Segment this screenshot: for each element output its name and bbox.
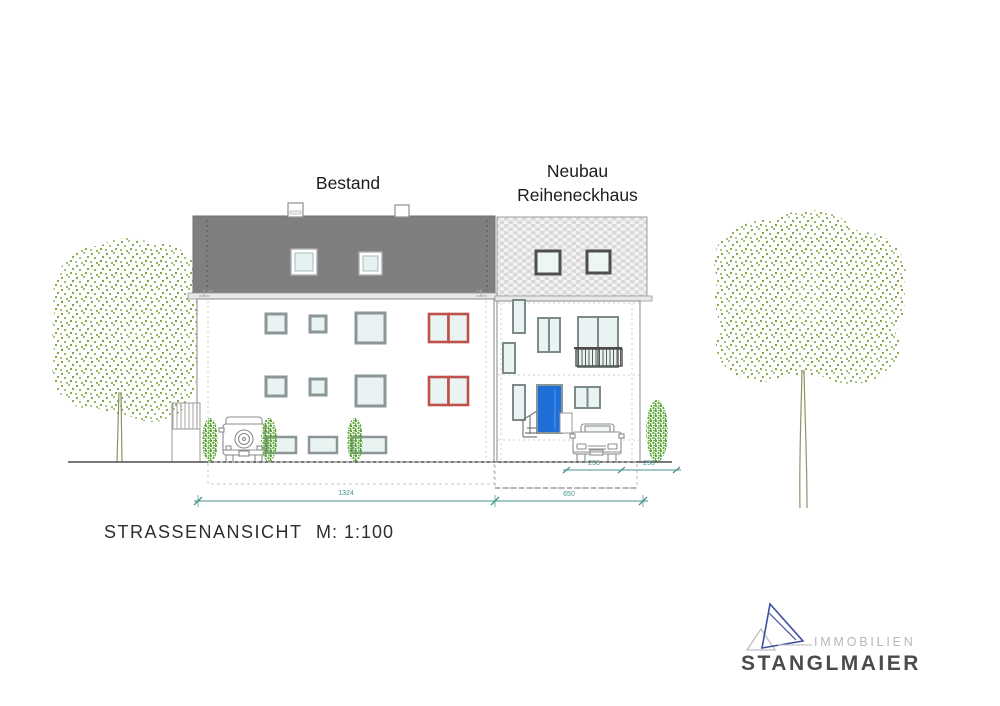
dim-parking-1: 250 <box>579 460 609 467</box>
bestand-window <box>356 376 385 406</box>
page-canvas: Bestand Neubau Reiheneckhaus 1324 650 25… <box>0 0 1000 706</box>
bestand-window <box>310 316 326 332</box>
dim-total-neubau: 650 <box>549 491 589 498</box>
right-tree-trunk <box>800 370 807 508</box>
neubau-tall-window <box>538 318 560 352</box>
neubau-roof-window-2 <box>587 251 610 273</box>
neubau-roof <box>495 217 652 301</box>
red-window-bottom <box>429 377 468 405</box>
neubau-roof-window-1 <box>536 251 560 274</box>
neubau-narrow-window <box>513 300 525 333</box>
label-neubau-line1: Neubau <box>500 160 655 184</box>
drawing-scale: M: 1:100 <box>316 522 394 543</box>
bestand-window <box>310 379 326 395</box>
right-bush <box>646 400 668 462</box>
fence <box>172 403 200 462</box>
logo-stanglmaier: STANGLMAIER <box>741 652 921 676</box>
elevation-drawing <box>0 0 1000 706</box>
neubau-ground-window <box>575 387 600 408</box>
chimney-left <box>288 203 303 217</box>
bestand-eave <box>188 293 497 299</box>
drawing-title: STRASSENANSICHT <box>104 522 303 543</box>
bestand-roof-window-1 <box>291 249 317 275</box>
balcony-railing <box>576 349 622 366</box>
bestand-window <box>356 313 385 343</box>
right-tree <box>714 210 906 508</box>
label-neubau: Neubau Reiheneckhaus <box>500 160 655 207</box>
label-neubau-line2: Reiheneckhaus <box>500 184 655 208</box>
chimney-right <box>395 205 409 217</box>
balcony-window <box>574 317 622 367</box>
bestand-roof <box>188 203 497 299</box>
label-bestand: Bestand <box>296 172 400 196</box>
bestand-window <box>266 314 286 333</box>
dim-total-bestand: 1324 <box>326 490 366 497</box>
bestand-roof-window-2 <box>359 252 382 275</box>
basement-window <box>309 437 337 453</box>
neubau-narrow-window <box>503 343 515 373</box>
bestand-window <box>266 377 286 396</box>
dim-parking-2: 250 <box>634 460 664 467</box>
logo-immobilien: IMMOBILIEN <box>814 635 916 649</box>
entrance-step-block <box>560 413 572 433</box>
dimension-line-parking <box>563 467 681 473</box>
basement-outline <box>208 462 637 488</box>
logo-mark <box>747 604 812 650</box>
red-window-top <box>429 314 468 342</box>
neubau-narrow-window <box>513 385 525 420</box>
